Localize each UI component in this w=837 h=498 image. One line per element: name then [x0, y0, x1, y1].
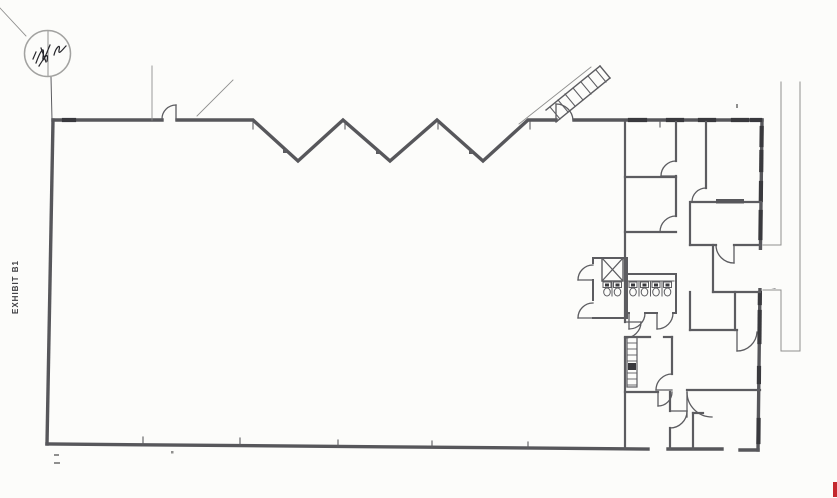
- exhibit-label: EXHIBIT B1: [11, 260, 20, 314]
- grid-ticks-and-leaders: [0, 8, 660, 449]
- floorplan-svg: [0, 0, 837, 498]
- dock-walkway-lines: [763, 82, 800, 351]
- wall-break-symbol: [757, 250, 779, 288]
- ladder-symbol: [627, 337, 637, 387]
- scan-artifacts: [54, 104, 837, 497]
- floorplan-page: EXHIBIT B1: [0, 0, 837, 498]
- surveyor-stamp: [25, 31, 71, 77]
- stair-symbol: [519, 66, 610, 124]
- restrooms: [593, 258, 676, 318]
- door-swings: [162, 104, 757, 428]
